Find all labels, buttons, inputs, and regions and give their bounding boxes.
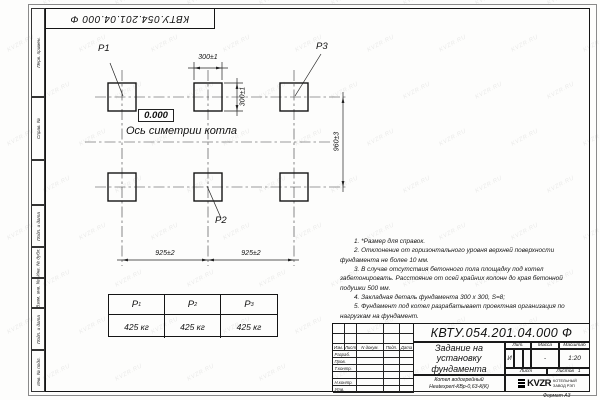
- row-blank: [333, 372, 357, 379]
- scale-header: Масштаб: [559, 342, 590, 349]
- load-table-header-p2: P2: [165, 295, 221, 315]
- mass-value: -: [531, 349, 559, 368]
- load-table-value-p2: 425 кг: [165, 315, 221, 338]
- load-label-p1: P1: [98, 43, 110, 54]
- lit-cell-3: [523, 349, 531, 368]
- row-tkontr: Т.контр.: [333, 365, 357, 372]
- title-block-signature-grid: Изм. Лист N докум. Подп. Дата Разраб. Пр…: [332, 323, 413, 392]
- notes-block: 1. *Размер для справок. 2. Отклонение от…: [340, 237, 588, 321]
- load-table-header-p1: P1: [109, 295, 165, 315]
- scale-value: 1:20: [559, 349, 590, 368]
- load-table-value-p1: 425 кг: [109, 315, 165, 338]
- lit-cell-2: [514, 349, 523, 368]
- format-label: Формат А3: [543, 393, 570, 399]
- row-utv: Утв.: [333, 386, 357, 393]
- note-5: 5. Фундамент под котел разрабатывает про…: [340, 302, 588, 321]
- col-podp: Подп.: [384, 344, 400, 351]
- kvzr-logo-icon: [518, 379, 525, 388]
- dim-span-left: 925±2: [147, 250, 183, 257]
- sheets-cell: Листов 1: [547, 368, 590, 375]
- load-label-p2: P2: [215, 215, 227, 226]
- dim-height-right: 960±3: [334, 127, 341, 157]
- dim-height-small: 300±1: [240, 82, 247, 112]
- note-3: 3. В случае отсутствия бетонного пола пл…: [340, 265, 588, 293]
- organization-cell: KVZR КОТЕЛЬНЫЙ ЗАВОД РЭП: [505, 375, 590, 392]
- col-data: Дата: [400, 344, 414, 351]
- dimension-arrows: [122, 67, 344, 262]
- title-block-product-name: Котел водогрейный Heatexpert-КВр-0,63-К(…: [413, 375, 505, 392]
- note-1: 1. *Размер для справок.: [340, 237, 588, 246]
- lit-value: И: [505, 349, 514, 368]
- kvzr-logo-text: KVZR: [527, 378, 551, 389]
- axis-of-symmetry-label: Ось симетрии котла: [126, 125, 237, 137]
- elevation-mark: 0.000: [138, 109, 174, 122]
- col-izm: Изм.: [333, 344, 345, 351]
- organization-name: КОТЕЛЬНЫЙ ЗАВОД РЭП: [553, 379, 577, 388]
- col-list: Лист: [345, 344, 357, 351]
- row-nkontr: Н.контр.: [333, 379, 357, 386]
- lit-header: Лит.: [505, 342, 531, 349]
- dim-width-top: 300±1: [190, 54, 226, 61]
- dim-span-right: 925±2: [233, 250, 269, 257]
- row-razrab: Разраб.: [333, 351, 357, 358]
- title-block-document-name: Задание на установку фундамента: [413, 342, 505, 375]
- load-label-p3: P3: [316, 41, 328, 52]
- sheet: KVZR.RUKVZR.RUKVZR.RUKVZR.RUKVZR.RUKVZR.…: [0, 0, 600, 400]
- title-block-designation: КВТУ.054.201.04.000 Ф: [413, 323, 590, 342]
- load-table: P1 P2 P3 425 кг 425 кг 425 кг: [108, 294, 278, 337]
- note-2: 2. Отклонение от горизонтального уровня …: [340, 246, 588, 265]
- row-prov: Пров.: [333, 358, 357, 365]
- note-4: 4. Закладная деталь фундамента 300 x 300…: [340, 293, 588, 302]
- mass-header: Масса: [531, 342, 559, 349]
- col-ndocum: N докум.: [357, 344, 384, 351]
- load-table-value-p3: 425 кг: [221, 315, 277, 338]
- load-table-header-p3: P3: [221, 295, 277, 315]
- sheet-cell: Лист: [505, 368, 547, 375]
